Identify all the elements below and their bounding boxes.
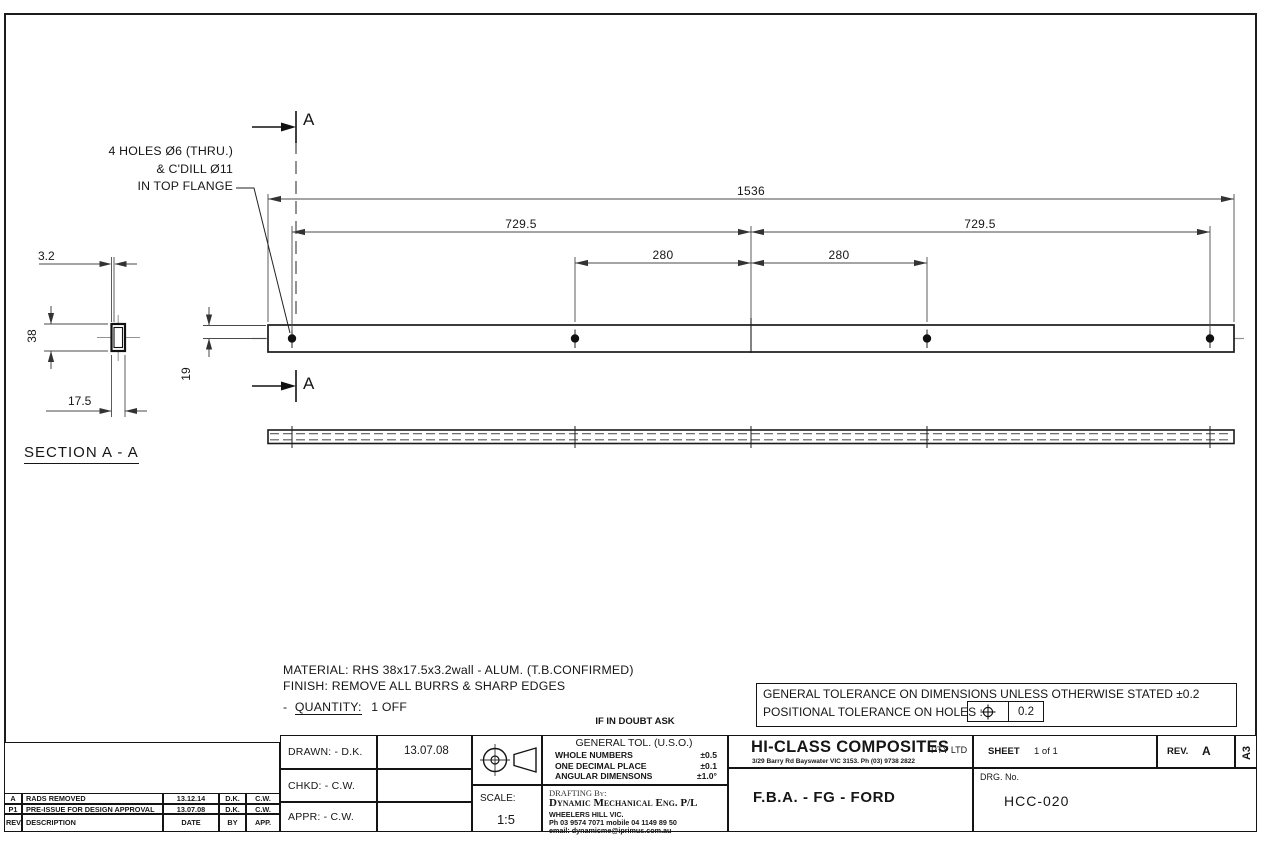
- company-cell: HI-CLASS COMPOSITES PTY LTD 3/29 Barry R…: [728, 735, 973, 768]
- checked-by: CHKD: - C.W.: [288, 780, 355, 792]
- rev-row-p1-rev: P1: [4, 804, 22, 814]
- drawing-title-cell: F.B.A. - FG - FORD: [728, 768, 973, 832]
- dim-wall-thickness: 3.2: [38, 249, 55, 263]
- tol-whole-label: WHOLE NUMBERS: [555, 750, 633, 760]
- rev-row-p1-date: 13.07.08: [163, 804, 219, 814]
- note-quantity: - QUANTITY: 1 OFF: [283, 700, 407, 714]
- general-tolerance-note: GENERAL TOLERANCE ON DIMENSIONS UNLESS O…: [763, 687, 1199, 701]
- tol-decimal-value: ±0.1: [700, 761, 717, 771]
- rev-label: REV.: [1167, 746, 1188, 757]
- drawing-sheet: 4 HOLES Ø6 (THRU.) & C'DILL Ø11 IN TOP F…: [0, 0, 1262, 841]
- drg-no-cell: DRG. No. HCC-020: [973, 768, 1257, 832]
- scale-cell: SCALE: 1:5: [472, 785, 542, 832]
- rev-header-date: DATE: [163, 814, 219, 832]
- scale-label: SCALE:: [480, 793, 516, 804]
- titleblock-drawn-cell: DRAWN: - D.K.: [280, 735, 377, 769]
- rev-row-p1-by: D.K.: [219, 804, 246, 814]
- note-quantity-label: QUANTITY:: [295, 700, 362, 715]
- approved-by: APPR: - C.W.: [288, 811, 354, 823]
- note-material: MATERIAL: RHS 38x17.5x3.2wall - ALUM. (T…: [283, 663, 634, 677]
- drafting-email: email: dynamicme@iprimus.com.au: [549, 826, 671, 835]
- rev-header-rev: REV.: [4, 814, 22, 832]
- projection-symbol-cell: [472, 735, 542, 785]
- titleblock-checked-date-cell: [377, 769, 472, 802]
- scale-value: 1:5: [473, 812, 539, 827]
- dim-section-height: 38: [25, 316, 39, 356]
- drg-number: HCC-020: [1004, 793, 1069, 809]
- drafting-cell: DRAFTING By: Dynamic Mechanical Eng. P/L…: [542, 785, 728, 832]
- rev-row-a-date: 13.12.14: [163, 793, 219, 804]
- rev-row-a-description: RADS REMOVED: [22, 793, 163, 804]
- beam-side-view: [268, 426, 1234, 448]
- holes-annotation: 4 HOLES Ø6 (THRU.) & C'DILL Ø11 IN TOP F…: [85, 143, 233, 196]
- beam-plan-view: [252, 318, 1248, 353]
- note-if-in-doubt: IF IN DOUBT ASK: [575, 716, 695, 727]
- drawn-date: 13.07.08: [404, 745, 449, 757]
- section-cut-label-top: A: [303, 110, 315, 130]
- note-quantity-value: 1 OFF: [371, 700, 407, 714]
- rev-row-p1-description: PRE-ISSUE FOR DESIGN APPROVAL: [22, 804, 163, 814]
- third-angle-projection-icon: [473, 736, 541, 784]
- titleblock-checked-cell: CHKD: - C.W.: [280, 769, 377, 802]
- rev-row-p1-app: C.W.: [246, 804, 280, 814]
- positional-tolerance-value: 0.2: [1009, 701, 1044, 722]
- rev-header-description: DESCRIPTION: [22, 814, 163, 832]
- rev-header-app: APP.: [246, 814, 280, 832]
- tolerance-box: GENERAL TOLERANCE ON DIMENSIONS UNLESS O…: [756, 683, 1237, 727]
- position-tolerance-icon: [967, 701, 1009, 722]
- rev-value: A: [1202, 744, 1211, 758]
- section-cut-line: [252, 111, 296, 402]
- holes-annotation-line1: 4 HOLES Ø6 (THRU.): [85, 143, 233, 161]
- tol-whole-value: ±0.5: [700, 750, 717, 760]
- section-cut-label-bottom: A: [303, 374, 315, 394]
- drg-label: DRG. No.: [980, 772, 1019, 782]
- titleblock-approved-date-cell: [377, 802, 472, 832]
- sheet-cell: SHEET 1 of 1: [973, 735, 1157, 768]
- general-tol-cell: GENERAL TOL. (U.S.O.) WHOLE NUMBERS ±0.5…: [542, 735, 728, 785]
- rev-header-by: BY: [219, 814, 246, 832]
- dim-edge-to-center: 19: [179, 354, 193, 394]
- tol-angular-label: ANGULAR DIMENSONS: [555, 771, 652, 781]
- sheet-label: SHEET: [988, 746, 1020, 757]
- drafting-company: Dynamic Mechanical Eng. P/L: [549, 797, 697, 809]
- dim-span-right: 729.5: [940, 217, 1020, 231]
- drawing-title: F.B.A. - FG - FORD: [753, 789, 895, 806]
- section-view: [39, 257, 147, 417]
- note-quantity-prefix: -: [283, 700, 287, 714]
- dim-section-width: 17.5: [68, 394, 91, 408]
- dim-span-left: 729.5: [481, 217, 561, 231]
- feature-control-frame: 0.2: [967, 701, 1044, 722]
- rev-row-a-by: D.K.: [219, 793, 246, 804]
- general-tol-title: GENERAL TOL. (U.S.O.): [543, 737, 725, 749]
- company-address: 3/29 Barry Rd Bayswater VIC 3153. Ph (03…: [752, 758, 915, 765]
- dim-hole-left: 280: [623, 248, 703, 262]
- section-view-title: SECTION A - A: [24, 444, 139, 464]
- holes-annotation-line3: IN TOP FLANGE: [85, 178, 233, 196]
- paper-size: A3: [1240, 733, 1254, 773]
- paper-size-cell: A3: [1235, 735, 1257, 768]
- holes-leader-line: [236, 188, 290, 333]
- titleblock-approved-cell: APPR: - C.W.: [280, 802, 377, 832]
- company-suffix: PTY LTD: [931, 745, 967, 755]
- titleblock-drawn-date-cell: 13.07.08: [377, 735, 472, 769]
- sheet-value: 1 of 1: [1034, 746, 1058, 757]
- rev-row-a-rev: A: [4, 793, 22, 804]
- note-finish: FINISH: REMOVE ALL BURRS & SHARP EDGES: [283, 679, 565, 693]
- rev-cell: REV. A: [1157, 735, 1235, 768]
- tol-decimal-label: ONE DECIMAL PLACE: [555, 761, 647, 771]
- dim-hole-right: 280: [799, 248, 879, 262]
- positional-tolerance-note: POSITIONAL TOLERANCE ON HOLES :: [763, 705, 983, 719]
- company-name: HI-CLASS COMPOSITES: [751, 738, 949, 757]
- holes-annotation-line2: & C'DILL Ø11: [85, 161, 233, 179]
- rev-row-a-app: C.W.: [246, 793, 280, 804]
- dim-overall-length: 1536: [711, 184, 791, 198]
- tol-angular-value: ±1.0°: [697, 771, 717, 781]
- drawn-by: DRAWN: - D.K.: [288, 746, 363, 758]
